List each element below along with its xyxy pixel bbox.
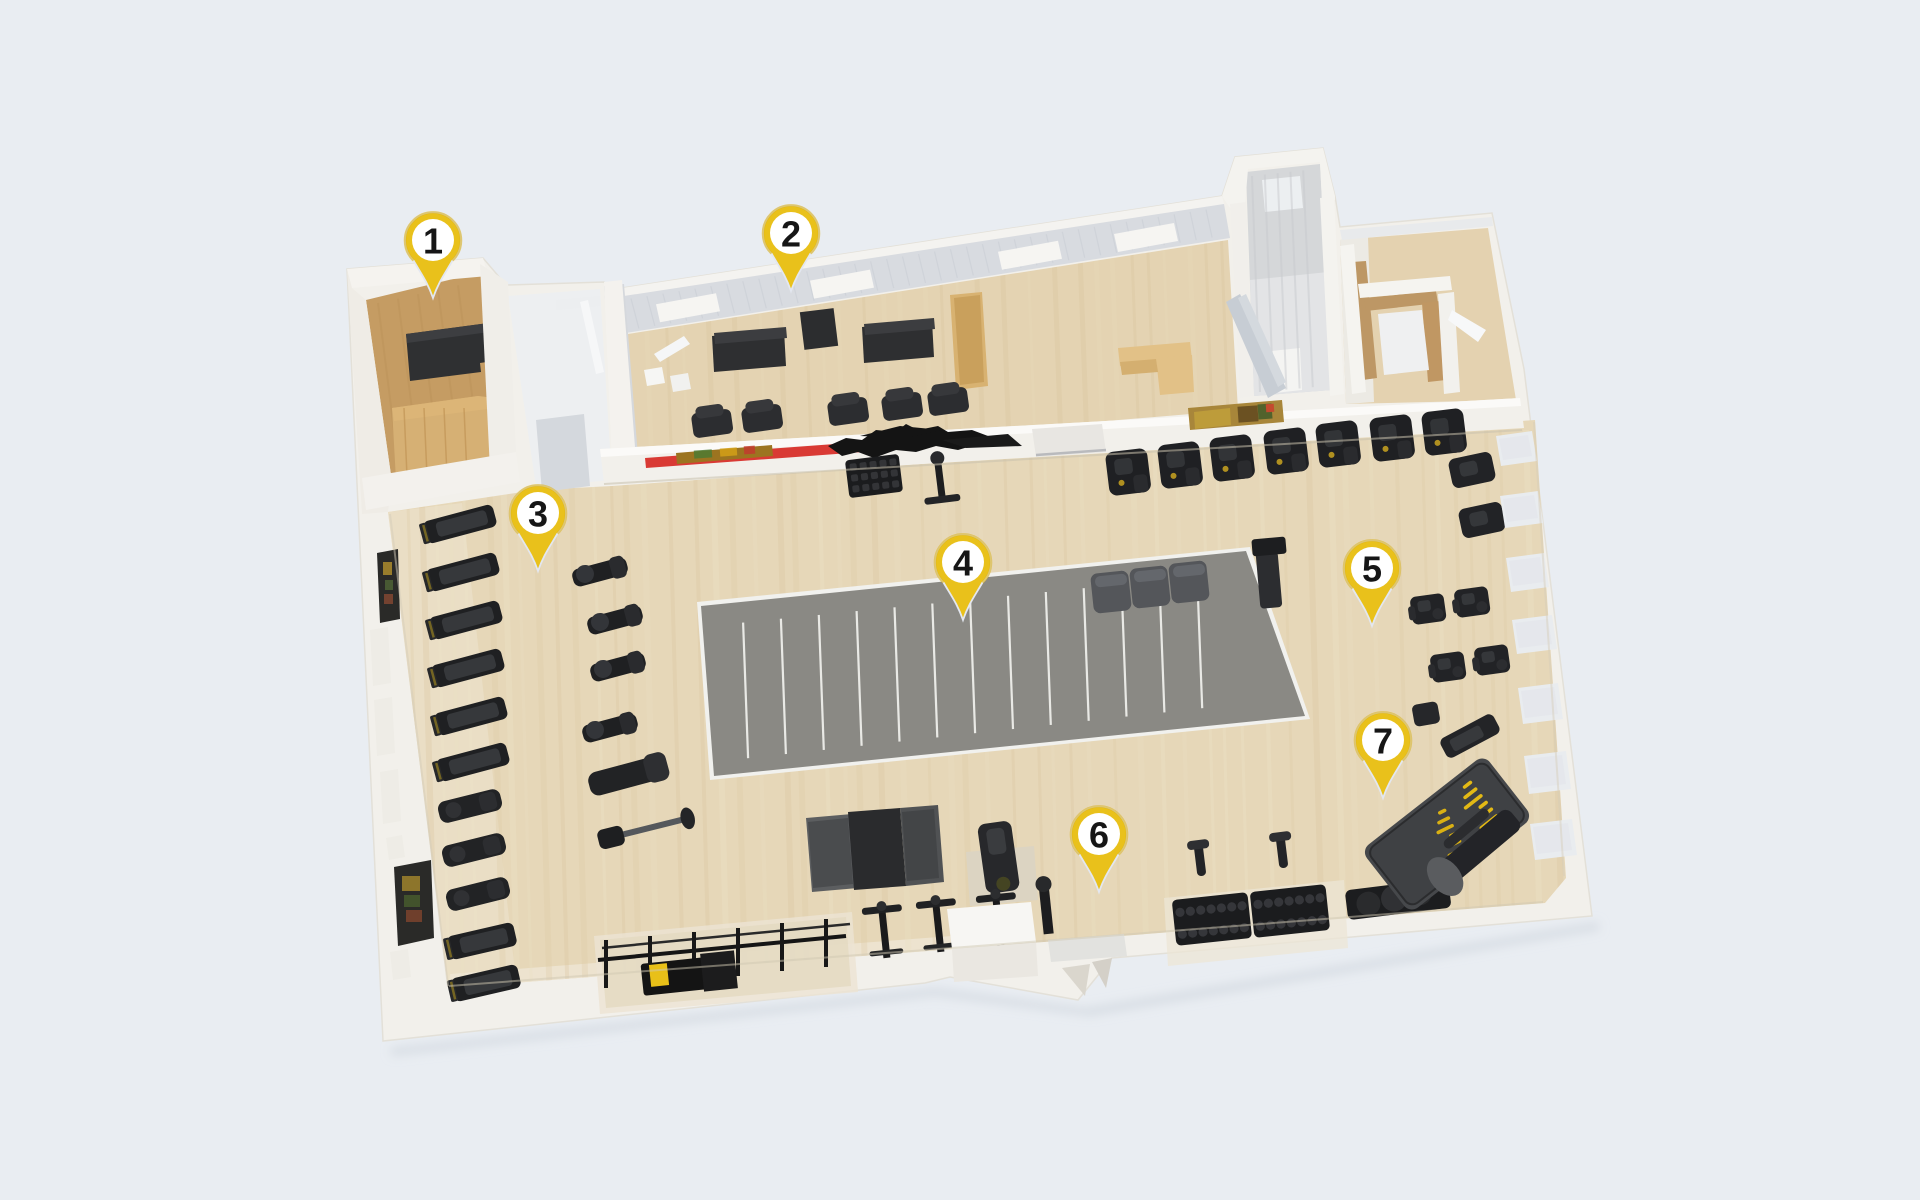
svg-text:2: 2 <box>781 214 801 255</box>
svg-text:7: 7 <box>1373 721 1393 762</box>
svg-text:4: 4 <box>953 543 973 584</box>
svg-text:5: 5 <box>1362 549 1382 590</box>
svg-text:6: 6 <box>1089 815 1109 856</box>
svg-text:3: 3 <box>528 494 548 535</box>
svg-text:1: 1 <box>423 221 443 262</box>
